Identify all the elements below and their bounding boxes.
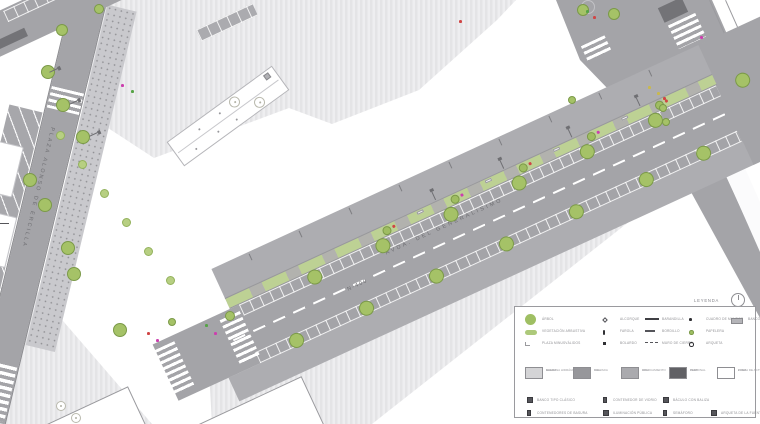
furniture-icon: [603, 397, 607, 403]
surface-swatch: [525, 367, 543, 379]
tree-icon: [41, 65, 55, 79]
pin-icon: [603, 330, 605, 335]
tree-icon: [662, 118, 670, 126]
bench-icon: [731, 318, 743, 324]
tree-icon: [225, 311, 235, 321]
signal-marker-icon: [214, 332, 217, 335]
furniture-icon: [527, 410, 531, 416]
furniture-icon: [663, 410, 667, 416]
tree-icon: [113, 323, 127, 337]
streetlight-icon: [89, 132, 98, 137]
signal-marker-icon: [663, 97, 666, 100]
tree-icon: [56, 24, 68, 36]
signal-marker-icon: [459, 20, 462, 23]
tree-icon: [38, 198, 52, 212]
signal-marker-icon: [593, 16, 596, 19]
shrub-icon: [78, 160, 87, 169]
signal-marker-icon: [131, 90, 134, 93]
streetlight-icon: [69, 100, 78, 105]
signal-marker-icon: [205, 324, 208, 327]
dot-icon: [689, 318, 692, 321]
legend-symbol-label: PAPELERA: [706, 329, 724, 333]
shrub-icon: [166, 276, 175, 285]
signal-marker-icon: [586, 10, 589, 13]
signal-marker-icon: [657, 92, 660, 95]
legend-symbol-label: ÁRBOL: [542, 317, 554, 321]
legend-symbol-label: BANCO: [748, 317, 760, 321]
tree-icon: [56, 98, 70, 112]
ring-icon: [689, 342, 694, 347]
furniture-icon: [527, 397, 533, 403]
tree-icon: [168, 318, 176, 326]
tree-icon: [76, 130, 90, 144]
square-icon: [603, 342, 606, 345]
tree-icon: [659, 104, 667, 112]
legend-box: ÁRBOLVEGETACIÓN ARBUSTIVAPLAZA MINUSVÁLI…: [514, 306, 756, 418]
legend-element-label: SEMÁFORO: [673, 411, 693, 415]
furniture-icon: [603, 410, 609, 416]
tree-icon: [525, 314, 536, 325]
signal-marker-icon: [156, 339, 159, 342]
shrub-icon: [100, 189, 109, 198]
shrub-icon: [144, 247, 153, 256]
tree-icon: [568, 96, 576, 104]
corner-mark-icon: [525, 342, 530, 346]
tree-icon: [67, 267, 81, 281]
short-line-icon: [645, 330, 655, 332]
thick-line-icon: [645, 318, 659, 320]
tree-icon: [608, 8, 620, 20]
diamond-icon: [602, 317, 608, 323]
legend-symbol-label: PLAZA MINUSVÁLIDOS: [542, 341, 581, 345]
shrub-icon: [525, 330, 537, 335]
site-plan: PLAZA ALONSO DE ERCILLA: [0, 0, 760, 424]
legend-element-label: CONTENEDOR DE VIDRIO: [613, 398, 657, 402]
legend-title: LEYENDA: [694, 298, 719, 303]
tree-icon: [23, 173, 37, 187]
surface-swatch: [621, 367, 639, 379]
legend-symbol-label: ARQUETA: [706, 341, 723, 345]
legend-element-label: ILUMINACIÓN PÚBLICA: [613, 411, 652, 415]
signal-marker-icon: [700, 36, 703, 39]
legend-symbol-label: BOLARDO: [620, 341, 637, 345]
furniture-icon: [663, 397, 669, 403]
tree-icon: [94, 4, 104, 14]
legend-symbol-label: FAROLA: [620, 329, 634, 333]
legend-symbol-label: BORDILLO: [662, 329, 680, 333]
shrub-icon: [122, 218, 131, 227]
green-dot-icon: [689, 330, 694, 335]
legend-element-label: ARQUETA DE LA FUENTE: [721, 411, 760, 415]
signal-marker-icon: [648, 86, 651, 89]
legend-element-label: BÁCULO CON BALIZA: [673, 398, 709, 402]
legend-element-label: CONTENEDORES DE BASURA: [537, 411, 588, 415]
surface-swatch: [573, 367, 591, 379]
legend-element-label: BANCO TIPO CLÁSICO: [537, 398, 575, 402]
legend-symbol-label: VEGETACIÓN ARBUSTIVA: [542, 329, 585, 333]
signal-marker-icon: [147, 332, 150, 335]
shrub-icon: [56, 131, 65, 140]
tree-icon: [61, 241, 75, 255]
legend-symbol-label: ALCORQUE: [620, 317, 640, 321]
dash-line-icon: [645, 342, 659, 343]
surface-swatch: [669, 367, 687, 379]
surface-swatch: [717, 367, 735, 379]
north-compass-icon: [731, 293, 745, 307]
signal-marker-icon: [121, 84, 124, 87]
legend-symbol-label: BARANDILLA: [662, 317, 684, 321]
furniture-icon: [711, 410, 717, 416]
